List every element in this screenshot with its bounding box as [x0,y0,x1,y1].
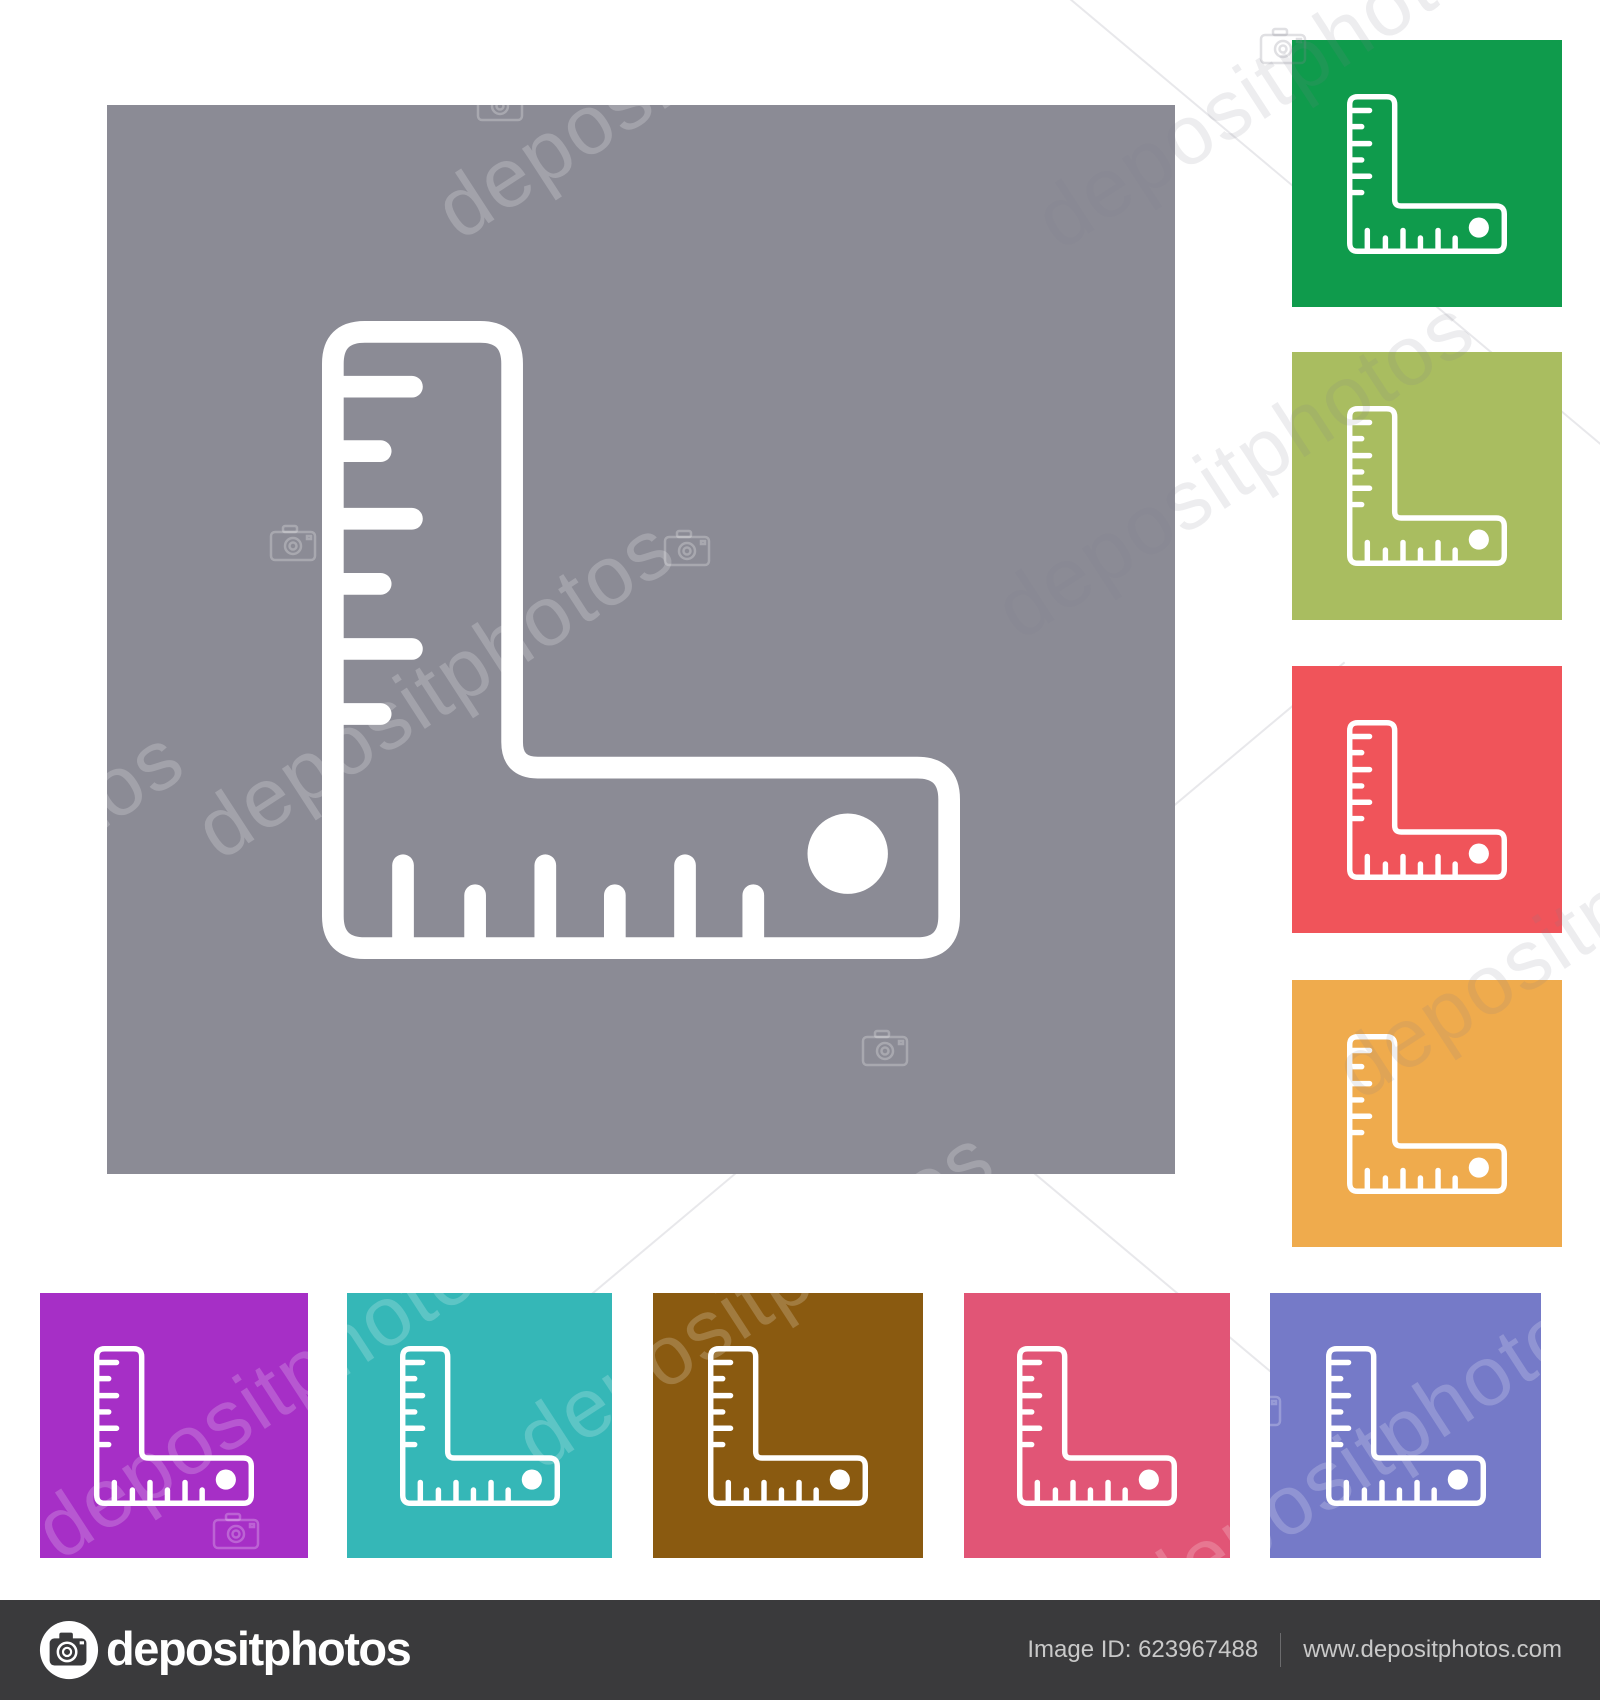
icon-tile-olive [1292,352,1562,620]
icon-tile-red [1292,666,1562,933]
ruler-icon [1347,720,1507,880]
icon-tile-pink [964,1293,1230,1558]
depositphotos-logo: depositphotos [38,1612,410,1688]
camera-logo-icon [38,1619,100,1681]
ruler-icon [708,1346,868,1506]
image-id-text: Image ID: 623967488 [1027,1636,1258,1664]
ruler-icon [1017,1346,1177,1506]
icon-tile-orange [1292,980,1562,1247]
ruler-icon [1347,1034,1507,1194]
website-text: www.depositphotos.com [1303,1636,1562,1664]
icon-tile-teal [347,1293,612,1558]
ruler-icon [1347,406,1507,566]
icon-tile-green [1292,40,1562,307]
icon-tile-brown [653,1293,923,1558]
icon-tile-gray [107,105,1175,1174]
ruler-icon [322,321,960,959]
ruler-icon [94,1346,254,1506]
footer-bar: depositphotos Image ID: 623967488 www.de… [0,1600,1600,1700]
ruler-icon [400,1346,560,1506]
footer-divider [1280,1633,1281,1667]
footer-brand-text: depositphotos [106,1621,410,1680]
ruler-icon [1326,1346,1486,1506]
icon-tile-slate [1270,1293,1541,1558]
icon-tile-purple [40,1293,308,1558]
ruler-icon [1347,94,1507,254]
